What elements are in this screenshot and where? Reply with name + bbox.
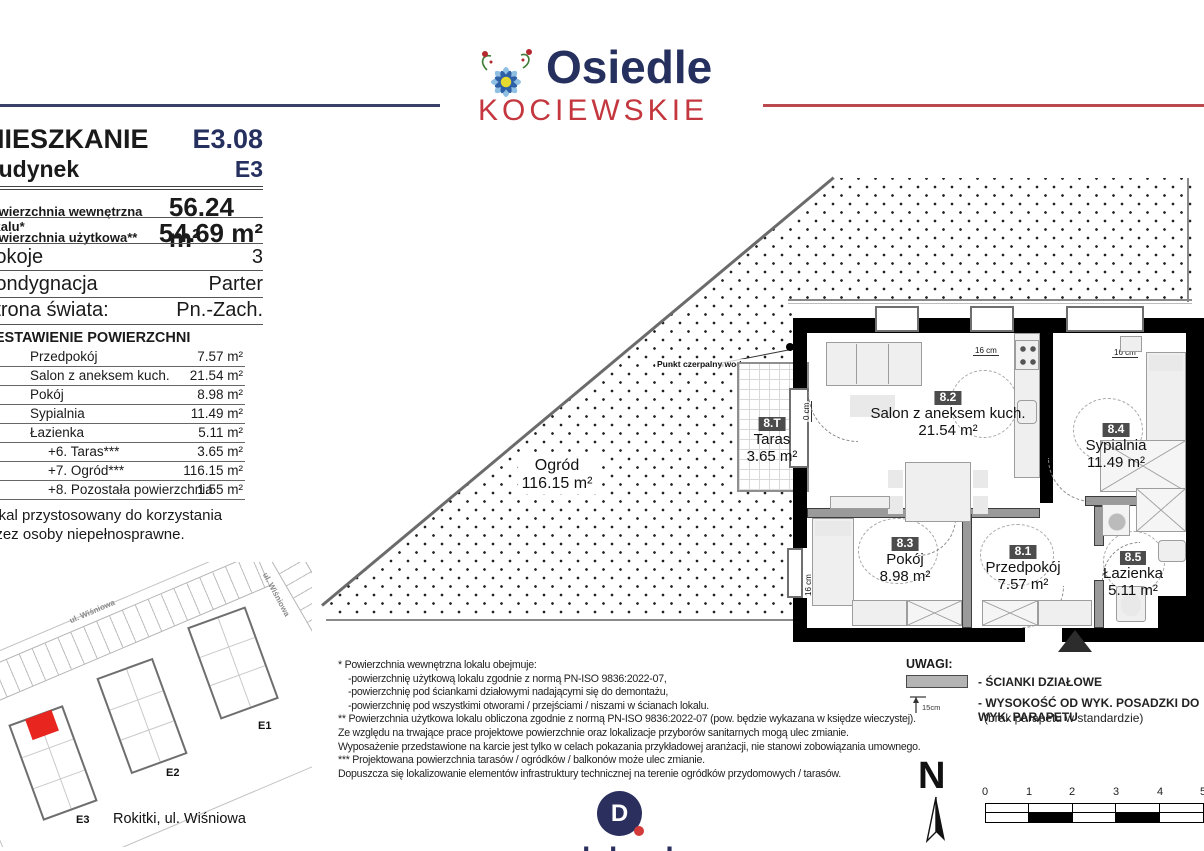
washing-machine xyxy=(1102,504,1130,536)
window-salon-2 xyxy=(970,306,1014,332)
scale-tick-1: 1 xyxy=(1026,786,1032,798)
garden-fence-top-of-building xyxy=(788,299,1192,301)
window-salon-1 xyxy=(875,306,919,332)
table-row: +6. Taras***3.65 m² xyxy=(0,442,245,462)
scale-tick-4: 4 xyxy=(1157,786,1163,798)
legend-partition-swatch xyxy=(906,675,968,688)
wall-left-upper xyxy=(793,318,807,388)
apartment-number: E3.08 xyxy=(192,124,263,155)
chair xyxy=(888,470,903,488)
sofa xyxy=(826,342,922,386)
building-number: E3 xyxy=(235,156,263,183)
scale-tick-2: 2 xyxy=(1069,786,1075,798)
accessibility-note: Lokal przystosowany do korzystania przez… xyxy=(0,506,252,544)
apartment-label: MIESZKANIE xyxy=(0,124,149,155)
developer-logo-text: dekpol xyxy=(572,842,675,851)
wall-bath-corner xyxy=(1158,596,1204,642)
room-label-terrace: 8.T Taras 3.65 m² xyxy=(747,414,798,466)
building-label-e2: E2 xyxy=(166,767,179,779)
scale-tick-3: 3 xyxy=(1113,786,1119,798)
table-row: +7. Ogród***116.15 m² xyxy=(0,461,245,481)
site-caption: Rokitki, ul. Wiśniowa xyxy=(113,811,246,827)
pillow xyxy=(815,521,851,536)
wardrobe-przedpokoj xyxy=(982,600,1038,626)
chair xyxy=(888,496,903,514)
room-label-garden: Ogród 116.15 m² xyxy=(518,456,597,494)
stove-icon xyxy=(1015,340,1039,370)
nightstand xyxy=(1120,336,1142,352)
entrance-arrow-icon xyxy=(1058,630,1092,652)
legend-height-value: 15cm xyxy=(922,703,940,712)
building-label-e3: E3 xyxy=(76,814,89,826)
window-dim-2: 16 cm xyxy=(973,346,999,356)
window-bedroom xyxy=(1066,306,1144,332)
table-row: 1Przedpokój7.57 m² xyxy=(0,347,245,367)
table-row: 4Sypialnia11.49 m² xyxy=(0,404,245,424)
table-row: 5Łazienka5.11 m² xyxy=(0,423,245,443)
scale-tick-0: 0 xyxy=(982,786,988,798)
header-rule-right xyxy=(763,104,1204,107)
table-row: 3Pokój8.98 m² xyxy=(0,385,245,405)
orientation-label: Strona świata: xyxy=(0,299,109,322)
apartment-card: Osiedle KOCIEWSKIE MIESZKANIEE3.08 Budyn… xyxy=(0,0,1204,851)
floor-label: Kondygnacja xyxy=(0,273,98,296)
area-usable-value: 54.69 m² xyxy=(159,218,263,249)
brand-name-line2: KOCIEWSKIE xyxy=(478,94,708,128)
room-label-pokoj: 8.3 Pokój 8.98 m² xyxy=(880,534,931,586)
legend-partition-label: - ŚCIANKI DZIAŁOWE xyxy=(978,675,1102,689)
header-rule-left xyxy=(0,104,440,107)
garden-fence-right xyxy=(1187,178,1189,302)
scale-bar xyxy=(985,803,1204,823)
garden-fence-top-of-building2 xyxy=(788,303,1192,304)
wall-right xyxy=(1186,318,1204,642)
wall-bottom-left xyxy=(793,628,1025,642)
window-pokoj xyxy=(787,548,803,598)
garden-fence-bottom xyxy=(326,619,794,621)
scale-tick-5: 5 xyxy=(1200,786,1204,798)
brand-name-line1: Osiedle xyxy=(546,40,712,94)
site-plan: ul. Wiśniowa ul. Wiśniowa E1 E2 E3 Rokit… xyxy=(0,562,312,847)
legend-title: UWAGI: xyxy=(906,657,953,671)
table-row: 2Salon z aneksem kuch.21.54 m² xyxy=(0,366,245,386)
chair xyxy=(973,470,988,488)
wardrobe-pokoj xyxy=(907,600,962,626)
building-label-e1: E1 xyxy=(258,720,271,732)
area-table-title: ZESTAWIENIE POWIERZCHNI xyxy=(0,330,190,346)
partition-pokoj-przedpokoj xyxy=(962,514,972,628)
room-label-lazienka: 8.5 Łazienka 5.11 m² xyxy=(1103,548,1163,600)
orientation-value: Pn.-Zach. xyxy=(176,299,263,322)
shower xyxy=(1136,488,1186,532)
room-label-przedpokoj: 8.1 Przedpokój 7.57 m² xyxy=(985,542,1060,594)
compass-label: N xyxy=(918,755,945,798)
shelf-przedpokoj xyxy=(1038,600,1092,626)
dining-table xyxy=(905,462,971,522)
chair xyxy=(973,496,988,514)
sofa-cushion xyxy=(856,344,857,384)
compass-arrow-icon xyxy=(922,795,950,850)
room-label-sypialnia: 8.4 Sypialnia 11.49 m² xyxy=(1086,420,1147,472)
rooms-label: Pokoje xyxy=(0,246,43,269)
room-label-salon: 8.2 Salon z aneksem kuch. 21.54 m² xyxy=(870,388,1025,440)
wall-left-mid xyxy=(793,468,807,548)
footnotes: * Powierzchnia wewnętrzna lokalu obejmuj… xyxy=(338,659,913,781)
building-label: Budynek xyxy=(0,156,79,183)
water-point-label: Punkt czerpalny wody xyxy=(655,359,748,369)
legend-height-sublabel: (brak parapetu w standardzie) xyxy=(984,711,1143,725)
sofa-cushion xyxy=(888,344,889,384)
developer-logo-dot xyxy=(634,826,644,836)
desk xyxy=(830,496,890,509)
floor-value: Parter xyxy=(209,273,263,296)
table-row: +8. Pozostała powierzchnia1.55 m² xyxy=(0,480,245,500)
rooms-value: 3 xyxy=(252,246,263,269)
pillow xyxy=(1149,355,1183,371)
shelf-pokoj xyxy=(852,600,907,626)
